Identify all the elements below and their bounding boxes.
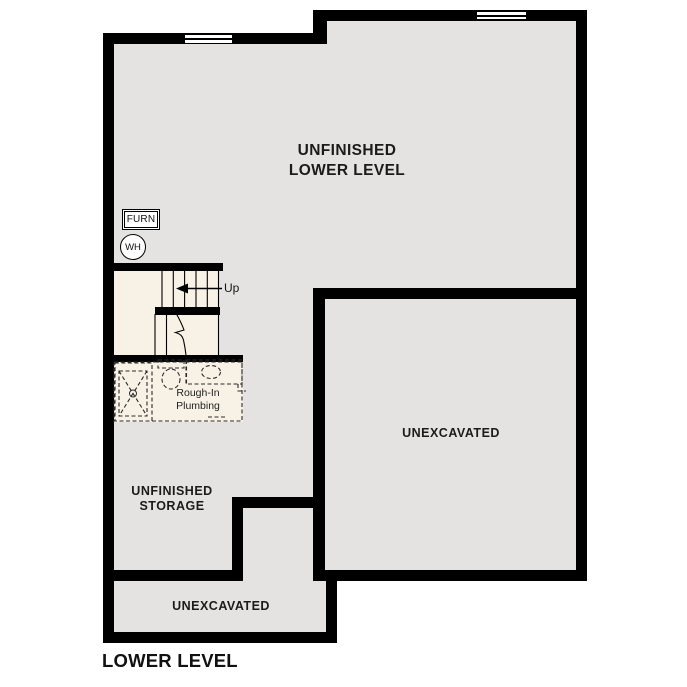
stair-break-line [176, 314, 187, 355]
wall-top-right [313, 10, 587, 21]
furnace-label: FURN [124, 211, 158, 228]
room-label-unfinished-storage: UNFINISHED STORAGE [112, 484, 232, 513]
wall-storage-bottom [103, 570, 243, 581]
floor-plan: Up Rough-In Plumbing FURN WH UNFINISHED … [0, 0, 687, 687]
wall-storage-notch-vertical [232, 497, 243, 581]
water-heater-label: WH [125, 242, 141, 253]
rough-in-plumbing-label: Rough-In Plumbing [160, 387, 236, 413]
plan-title: LOWER LEVEL [102, 650, 238, 672]
room-label-unfinished-lower-level: UNFINISHED LOWER LEVEL [267, 141, 427, 180]
stair-direction-label: Up [224, 281, 239, 295]
wall-storage-notch-horizontal [232, 497, 325, 508]
window-pane-line [185, 38, 232, 40]
wall-unexcavated-bottom [315, 570, 587, 581]
wall-left [103, 33, 114, 643]
stair-treads [114, 270, 220, 355]
wall-strip-bottom [103, 632, 337, 643]
wall-unexcavated-left [313, 288, 325, 581]
up-arrow-icon [176, 284, 222, 294]
wall-unexcavated-top [313, 288, 576, 299]
toilet-bowl [162, 369, 180, 389]
room-label-unexcavated-main: UNEXCAVATED [381, 426, 521, 441]
toilet-tank [158, 360, 184, 368]
sink-basin [202, 366, 221, 379]
window-symbol-left [185, 35, 232, 43]
wall-right [576, 10, 587, 581]
window-pane-line [477, 15, 526, 17]
window-symbol-right [477, 12, 526, 19]
vanity-counter [186, 360, 242, 384]
water-heater-symbol: WH [120, 234, 146, 260]
furnace-symbol: FURN [122, 209, 160, 230]
room-label-unexcavated-lower: UNEXCAVATED [151, 599, 291, 614]
